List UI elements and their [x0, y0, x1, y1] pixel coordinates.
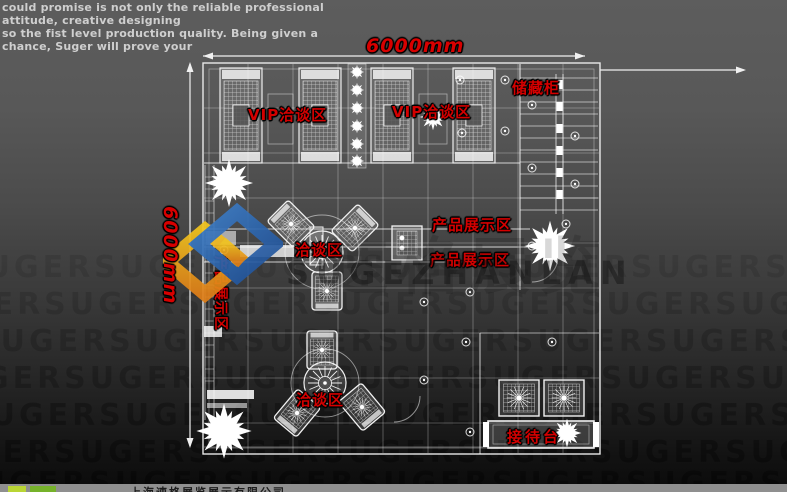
- dimension-height-label: 6000mm: [159, 206, 181, 304]
- footer-bar: 上海速格展览展示有限公司: [0, 484, 787, 492]
- label-reception-desk: 接待台: [507, 426, 561, 447]
- label-vip-area-right: VIP洽谈区: [392, 101, 471, 122]
- design-proposal-image: SUGERSUGERSUGERSUGERSUGERSUGERSUGERSUGER…: [0, 0, 787, 492]
- label-meeting-area-bottom: 洽谈区: [296, 389, 344, 410]
- label-meeting-area-center: 洽谈区: [295, 239, 343, 260]
- side-table: [392, 226, 422, 260]
- decorative-column: [347, 62, 367, 171]
- label-storage-cabinet: 储藏柜: [512, 77, 560, 98]
- label-product-display-left: 产品展示区: [211, 256, 231, 331]
- label-product-display-lower: 产品展示区: [430, 249, 510, 270]
- floor-plan-drawing: [0, 0, 787, 492]
- footer-logo-icon: [30, 486, 56, 492]
- company-name: 上海速格展览展示有限公司: [130, 484, 286, 492]
- label-vip-area-left: VIP洽谈区: [248, 104, 327, 125]
- dimension-width-label: 6000mm: [366, 35, 464, 57]
- label-product-display-upper: 产品展示区: [432, 214, 512, 235]
- meeting-set-bottom: [273, 331, 385, 437]
- footer-logo-icon: [8, 486, 26, 492]
